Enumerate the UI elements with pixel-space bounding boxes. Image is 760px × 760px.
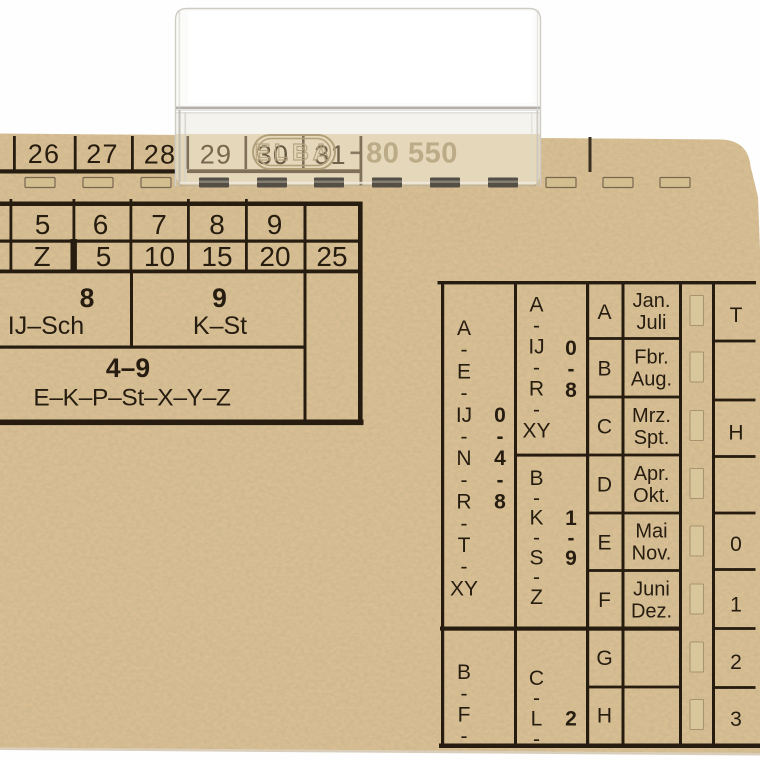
svg-text:0: 0 [730, 533, 742, 556]
svg-text:E: E [597, 532, 611, 555]
svg-text:-: - [461, 339, 468, 362]
svg-text:XY: XY [522, 420, 550, 443]
svg-text:E–K–P–St–X–Y–Z: E–K–P–St–X–Y–Z [33, 385, 231, 412]
svg-text:Mrz.: Mrz. [632, 405, 671, 427]
svg-text:-: - [497, 426, 504, 449]
svg-text:ELBA: ELBA [255, 139, 334, 165]
svg-text:IJ: IJ [456, 404, 472, 427]
svg-text:T: T [730, 304, 743, 327]
svg-text:9: 9 [565, 547, 577, 570]
svg-text:28: 28 [144, 140, 176, 170]
svg-text:Juli: Juli [636, 312, 666, 334]
svg-text:10: 10 [144, 241, 175, 272]
svg-text:6: 6 [93, 209, 109, 240]
svg-text:20: 20 [259, 241, 290, 272]
svg-text:Z: Z [33, 241, 50, 272]
svg-text:8: 8 [565, 379, 577, 402]
svg-text:Apr.: Apr. [634, 463, 670, 485]
svg-text:Jan.: Jan. [633, 290, 671, 312]
svg-text:-: - [461, 469, 468, 492]
svg-text:4: 4 [494, 447, 506, 470]
svg-text:3: 3 [730, 708, 742, 731]
svg-text:-: - [461, 556, 468, 579]
svg-text:K–St: K–St [193, 312, 247, 340]
svg-text:8: 8 [80, 283, 95, 313]
svg-text:T: T [458, 534, 471, 557]
svg-text:B: B [457, 661, 471, 684]
svg-text:80 550: 80 550 [366, 138, 458, 170]
svg-text:Fbr.: Fbr. [634, 346, 668, 368]
svg-text:-: - [533, 357, 540, 380]
svg-text:-: - [461, 683, 468, 706]
svg-text:-: - [568, 358, 575, 381]
svg-text:-: - [461, 426, 468, 449]
svg-text:-: - [533, 315, 540, 338]
svg-text:26: 26 [28, 139, 60, 169]
svg-text:C: C [597, 416, 612, 439]
svg-text:Mai: Mai [635, 520, 667, 542]
svg-text:9: 9 [267, 209, 283, 240]
svg-text:25: 25 [316, 241, 347, 272]
svg-text:-: - [533, 728, 540, 751]
svg-text:Dez.: Dez. [631, 600, 672, 622]
svg-text:F: F [598, 589, 611, 612]
svg-text:-: - [497, 469, 504, 492]
svg-text:H: H [728, 422, 743, 445]
svg-text:Z: Z [530, 586, 543, 609]
svg-text:0: 0 [565, 337, 577, 360]
svg-text:D: D [597, 474, 612, 497]
svg-text:B: B [597, 358, 611, 381]
svg-text:H: H [597, 705, 612, 728]
svg-text:27: 27 [86, 139, 118, 169]
svg-text:7: 7 [151, 209, 167, 240]
svg-text:1: 1 [730, 594, 742, 617]
svg-text:R: R [529, 378, 544, 401]
svg-text:8: 8 [494, 491, 506, 514]
svg-text:4–9: 4–9 [106, 353, 150, 383]
svg-text:29: 29 [200, 140, 232, 170]
svg-text:-: - [461, 512, 468, 535]
svg-text:2: 2 [730, 651, 742, 674]
svg-text:E: E [457, 360, 471, 383]
svg-text:-: - [533, 399, 540, 422]
svg-text:Aug.: Aug. [631, 368, 672, 390]
svg-text:F: F [458, 704, 471, 727]
svg-text:5: 5 [96, 241, 112, 272]
svg-text:15: 15 [201, 241, 232, 272]
svg-text:IJ–Sch: IJ–Sch [8, 312, 84, 340]
svg-text:XY: XY [450, 577, 478, 600]
svg-text:Spt.: Spt. [634, 427, 670, 449]
svg-text:-: - [461, 382, 468, 405]
svg-text:N: N [456, 447, 471, 470]
svg-text:A: A [597, 301, 611, 324]
svg-text:Okt.: Okt. [633, 485, 670, 507]
svg-text:Nov.: Nov. [632, 542, 672, 564]
svg-text:G: G [596, 647, 612, 670]
svg-text:-: - [461, 725, 468, 748]
svg-text:A: A [529, 294, 543, 317]
svg-text:IJ: IJ [528, 336, 544, 359]
svg-text:A: A [457, 317, 471, 340]
svg-text:8: 8 [209, 209, 225, 240]
svg-text:Juni: Juni [633, 578, 670, 600]
svg-text:5: 5 [35, 209, 51, 240]
svg-text:R: R [456, 491, 471, 514]
svg-text:9: 9 [212, 283, 227, 313]
svg-text:0: 0 [494, 404, 506, 427]
svg-text:2: 2 [565, 708, 577, 731]
